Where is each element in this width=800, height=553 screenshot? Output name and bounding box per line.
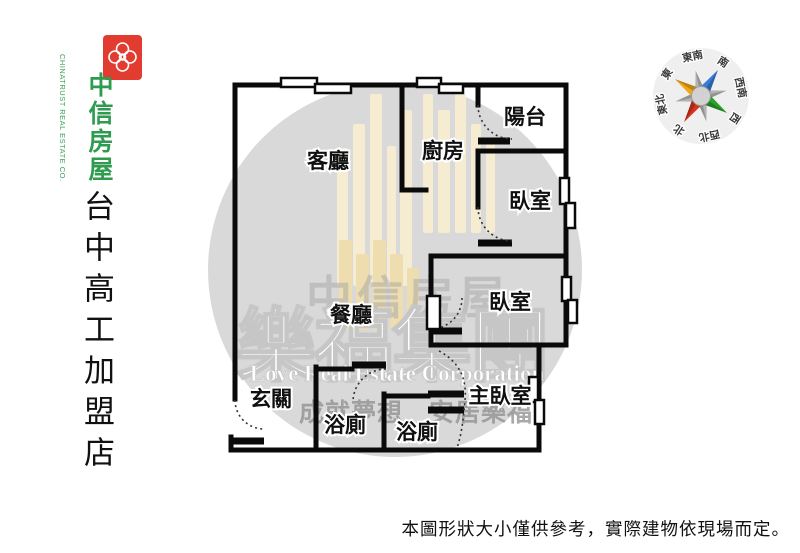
floor-plan-flyer: 中信房屋 樂福集團 Love Real Estate Corporation 成… xyxy=(0,0,800,553)
disclaimer-text: 本圖形狀大小僅供參考，實際建物依現場而定。 xyxy=(360,516,790,541)
compass-rose: 東南 南 西南 西 西北 北 東北 東 xyxy=(0,0,800,553)
compass-center xyxy=(692,87,711,106)
